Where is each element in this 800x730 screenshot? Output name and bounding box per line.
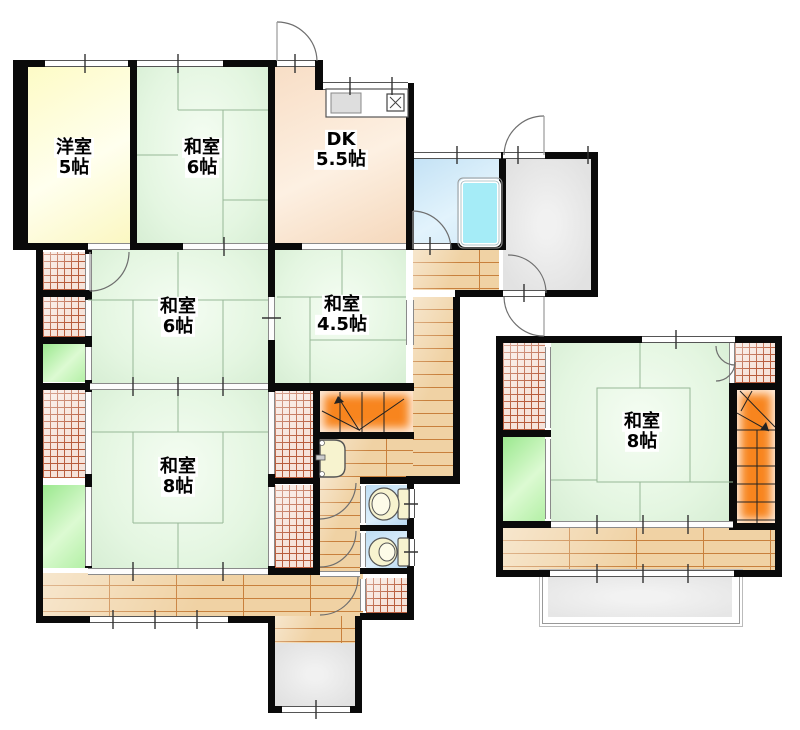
closet-green (43, 485, 85, 568)
wall (729, 390, 737, 530)
door-frame (503, 290, 545, 297)
wall (496, 521, 551, 528)
veranda (542, 572, 740, 624)
room-name: 和室 (182, 138, 222, 158)
room-size: 5帖 (57, 158, 92, 178)
room-name: 和室 (622, 412, 662, 432)
wall (455, 290, 505, 297)
wall (130, 243, 183, 250)
wall (130, 60, 137, 250)
wall (729, 523, 782, 530)
hallway-floor (413, 297, 453, 476)
sliding-door (88, 243, 130, 250)
sliding-door (268, 297, 275, 340)
wall (733, 570, 782, 577)
wall (268, 478, 320, 484)
room-size: 6帖 (185, 158, 220, 178)
room-size: 8帖 (161, 477, 196, 497)
closet-green (43, 344, 85, 382)
wall (360, 613, 414, 620)
closet (43, 297, 85, 337)
wall (360, 568, 414, 574)
window (642, 336, 700, 343)
wall (36, 337, 92, 344)
wall (406, 476, 460, 484)
door-frame (360, 486, 366, 523)
wall (36, 616, 90, 623)
hallway-floor (413, 250, 499, 290)
closet (275, 485, 313, 568)
room-name: 洋室 (54, 138, 94, 158)
wall (270, 383, 414, 391)
sliding-door (85, 347, 92, 380)
room-label-japanese-4-5: 和室 4.5帖 (315, 295, 369, 335)
floor-plan: 洋室 5帖 和室 6帖 DK 5.5帖 和室 6帖 和室 4.5帖 和室 8帖 … (0, 0, 800, 730)
wall (268, 568, 320, 575)
door-frame (277, 60, 315, 67)
window (409, 539, 415, 566)
wall (268, 60, 275, 250)
wall (775, 336, 782, 577)
room-label-japanese-8-main: 和室 8帖 (158, 457, 198, 497)
window (137, 60, 223, 67)
room-label-dk: DK 5.5帖 (314, 130, 368, 170)
corridor-floor (320, 477, 360, 573)
sliding-door (90, 383, 268, 390)
wall (453, 297, 460, 483)
sliding-door (406, 300, 414, 345)
wall (496, 430, 551, 437)
room-label-japanese-8-annex: 和室 8帖 (622, 412, 662, 452)
staircase-annex (737, 390, 775, 523)
room-name: 和室 (158, 297, 198, 317)
door-frame (414, 243, 450, 250)
wall (36, 290, 92, 297)
wall (360, 525, 414, 531)
door-frame (360, 533, 366, 567)
room-size: 8帖 (625, 432, 660, 452)
wall (496, 336, 503, 577)
closet (735, 343, 775, 383)
wall (355, 616, 362, 713)
sliding-door (85, 487, 92, 566)
engawa-annex-floor (503, 528, 775, 570)
bathroom-floor (413, 159, 499, 250)
wall (13, 243, 88, 250)
door-frame (503, 152, 545, 159)
staircase-main (320, 391, 413, 432)
engawa-floor (43, 573, 363, 616)
entrance-floor (503, 159, 591, 290)
window (90, 616, 228, 623)
veranda-deck (548, 577, 732, 617)
room-label-western-5: 洋室 5帖 (54, 138, 94, 178)
sliding-door (85, 254, 92, 290)
sliding-door (268, 392, 275, 474)
wall (496, 570, 552, 577)
wall (13, 60, 45, 67)
exterior-patch (323, 60, 406, 83)
wall (496, 336, 642, 343)
door-frame (729, 343, 735, 383)
wall (268, 243, 302, 250)
sliding-door (551, 521, 733, 528)
toilet-room-1-floor (366, 485, 407, 525)
wall (591, 152, 598, 297)
door-frame (360, 579, 366, 611)
sliding-door (88, 568, 268, 575)
window (282, 706, 350, 713)
sliding-door (320, 571, 360, 577)
door-frame (700, 336, 735, 343)
closet (43, 390, 85, 478)
window (550, 570, 734, 577)
porch-floor (275, 643, 355, 706)
sliding-door (183, 243, 268, 250)
wall (313, 432, 414, 439)
sliding-door (268, 487, 275, 566)
wall (406, 83, 414, 250)
wall (729, 383, 782, 390)
window (409, 489, 415, 518)
room-name: 和室 (322, 295, 362, 315)
wall (499, 152, 506, 250)
wall (13, 60, 28, 250)
room-size: 5.5帖 (314, 150, 368, 170)
wall (36, 243, 43, 623)
wall (450, 243, 506, 250)
wall (360, 477, 414, 484)
hallway-floor (320, 438, 413, 477)
window (45, 60, 128, 67)
sliding-door (85, 300, 92, 336)
sliding-door (85, 392, 92, 474)
room-name: DK (325, 130, 358, 150)
wall (36, 383, 92, 390)
closet (43, 252, 85, 290)
sliding-door (545, 439, 551, 519)
closet-green (503, 437, 545, 521)
room-size: 4.5帖 (315, 315, 369, 335)
toilet-room-2-floor (366, 531, 407, 568)
wall (268, 616, 275, 713)
room-label-japanese-6-top: 和室 6帖 (182, 138, 222, 178)
wall (545, 290, 598, 297)
closet (366, 578, 407, 613)
closet (503, 343, 545, 430)
window (414, 152, 501, 159)
sliding-door (302, 243, 406, 250)
window (323, 82, 408, 90)
closet (275, 390, 313, 478)
porch-wood-floor (275, 616, 355, 643)
room-name: 和室 (158, 457, 198, 477)
sliding-door (545, 347, 551, 428)
room-size: 6帖 (161, 317, 196, 337)
room-label-japanese-6-mid: 和室 6帖 (158, 297, 198, 337)
wall (315, 60, 323, 90)
